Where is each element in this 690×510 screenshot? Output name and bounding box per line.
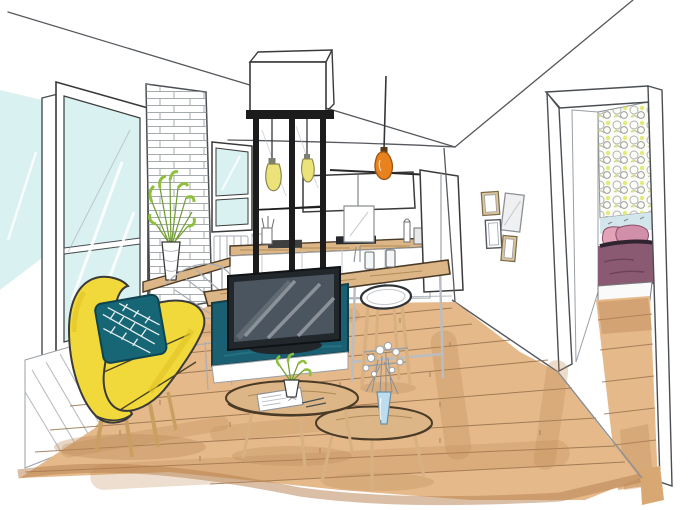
interior-sketch	[0, 0, 690, 510]
leaf-cushion	[94, 294, 167, 364]
bed	[598, 225, 656, 303]
sketch-canvas	[0, 0, 690, 510]
